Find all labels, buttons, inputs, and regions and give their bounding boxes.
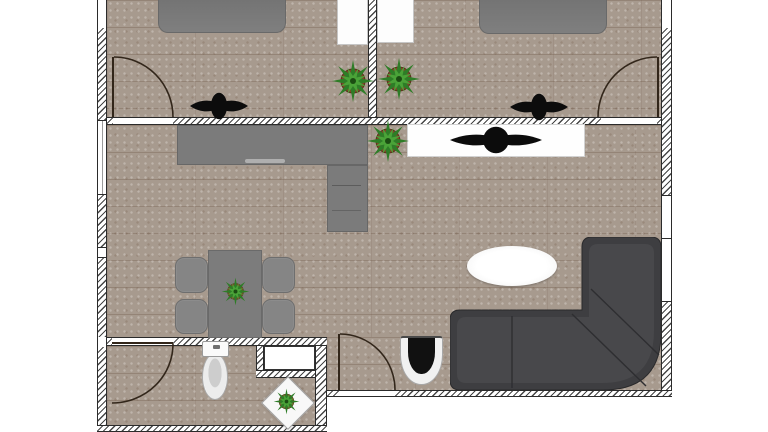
double-bed[interactable] [158,0,286,33]
wall-segment [661,0,672,28]
wall-segment [315,346,327,432]
door-swing-arc [112,344,173,403]
wall-segment [395,390,672,397]
toilet-bowl[interactable] [202,353,228,400]
potted-plant-icon[interactable] [366,119,410,163]
door-threshold [601,117,657,125]
potted-plant-icon[interactable] [221,277,250,306]
window-symbol[interactable] [661,195,672,302]
wall-segment [173,337,327,346]
wall-segment [97,195,107,247]
wall-segment [97,258,107,337]
entrance-threshold [339,390,395,397]
kitchen-counter[interactable] [327,165,368,232]
wall-segment [97,0,107,28]
wardrobe[interactable] [337,0,368,45]
wall-segment [657,117,661,125]
wall-segment [661,28,672,195]
dining-chair[interactable] [262,299,295,334]
dining-chair[interactable] [175,257,208,293]
window-symbol[interactable] [97,247,107,258]
toilet-tank[interactable] [202,341,229,357]
tv-icon[interactable] [190,92,248,120]
wall-niche-cabinet[interactable] [264,346,315,370]
potted-plant-icon[interactable] [273,388,300,415]
corner-sofa[interactable] [450,237,661,390]
tv-icon[interactable] [450,126,542,154]
double-bed[interactable] [479,0,607,34]
door-swing-arc [598,57,657,117]
window-symbol[interactable] [97,120,107,195]
dining-chair[interactable] [262,257,295,293]
wardrobe[interactable] [377,0,414,43]
bedroom-2-door[interactable] [657,57,659,117]
potted-plant-icon[interactable] [377,57,421,101]
wall-segment [661,302,672,397]
wall-segment [97,337,107,347]
wall-segment [97,28,107,120]
wall-segment [97,425,327,432]
floor-plan-canvas [0,0,768,432]
wall-segment [256,346,264,370]
potted-plant-icon[interactable] [331,59,375,103]
accent-chair-seat [408,338,435,374]
door-threshold [113,117,173,125]
kitchen-counter[interactable] [177,125,368,165]
dining-chair[interactable] [175,299,208,334]
door-swing-arc [114,57,173,117]
door-swing-arc [340,334,395,390]
wall-segment [97,347,107,432]
wall-segment [327,390,339,397]
tv-icon[interactable] [510,93,568,121]
